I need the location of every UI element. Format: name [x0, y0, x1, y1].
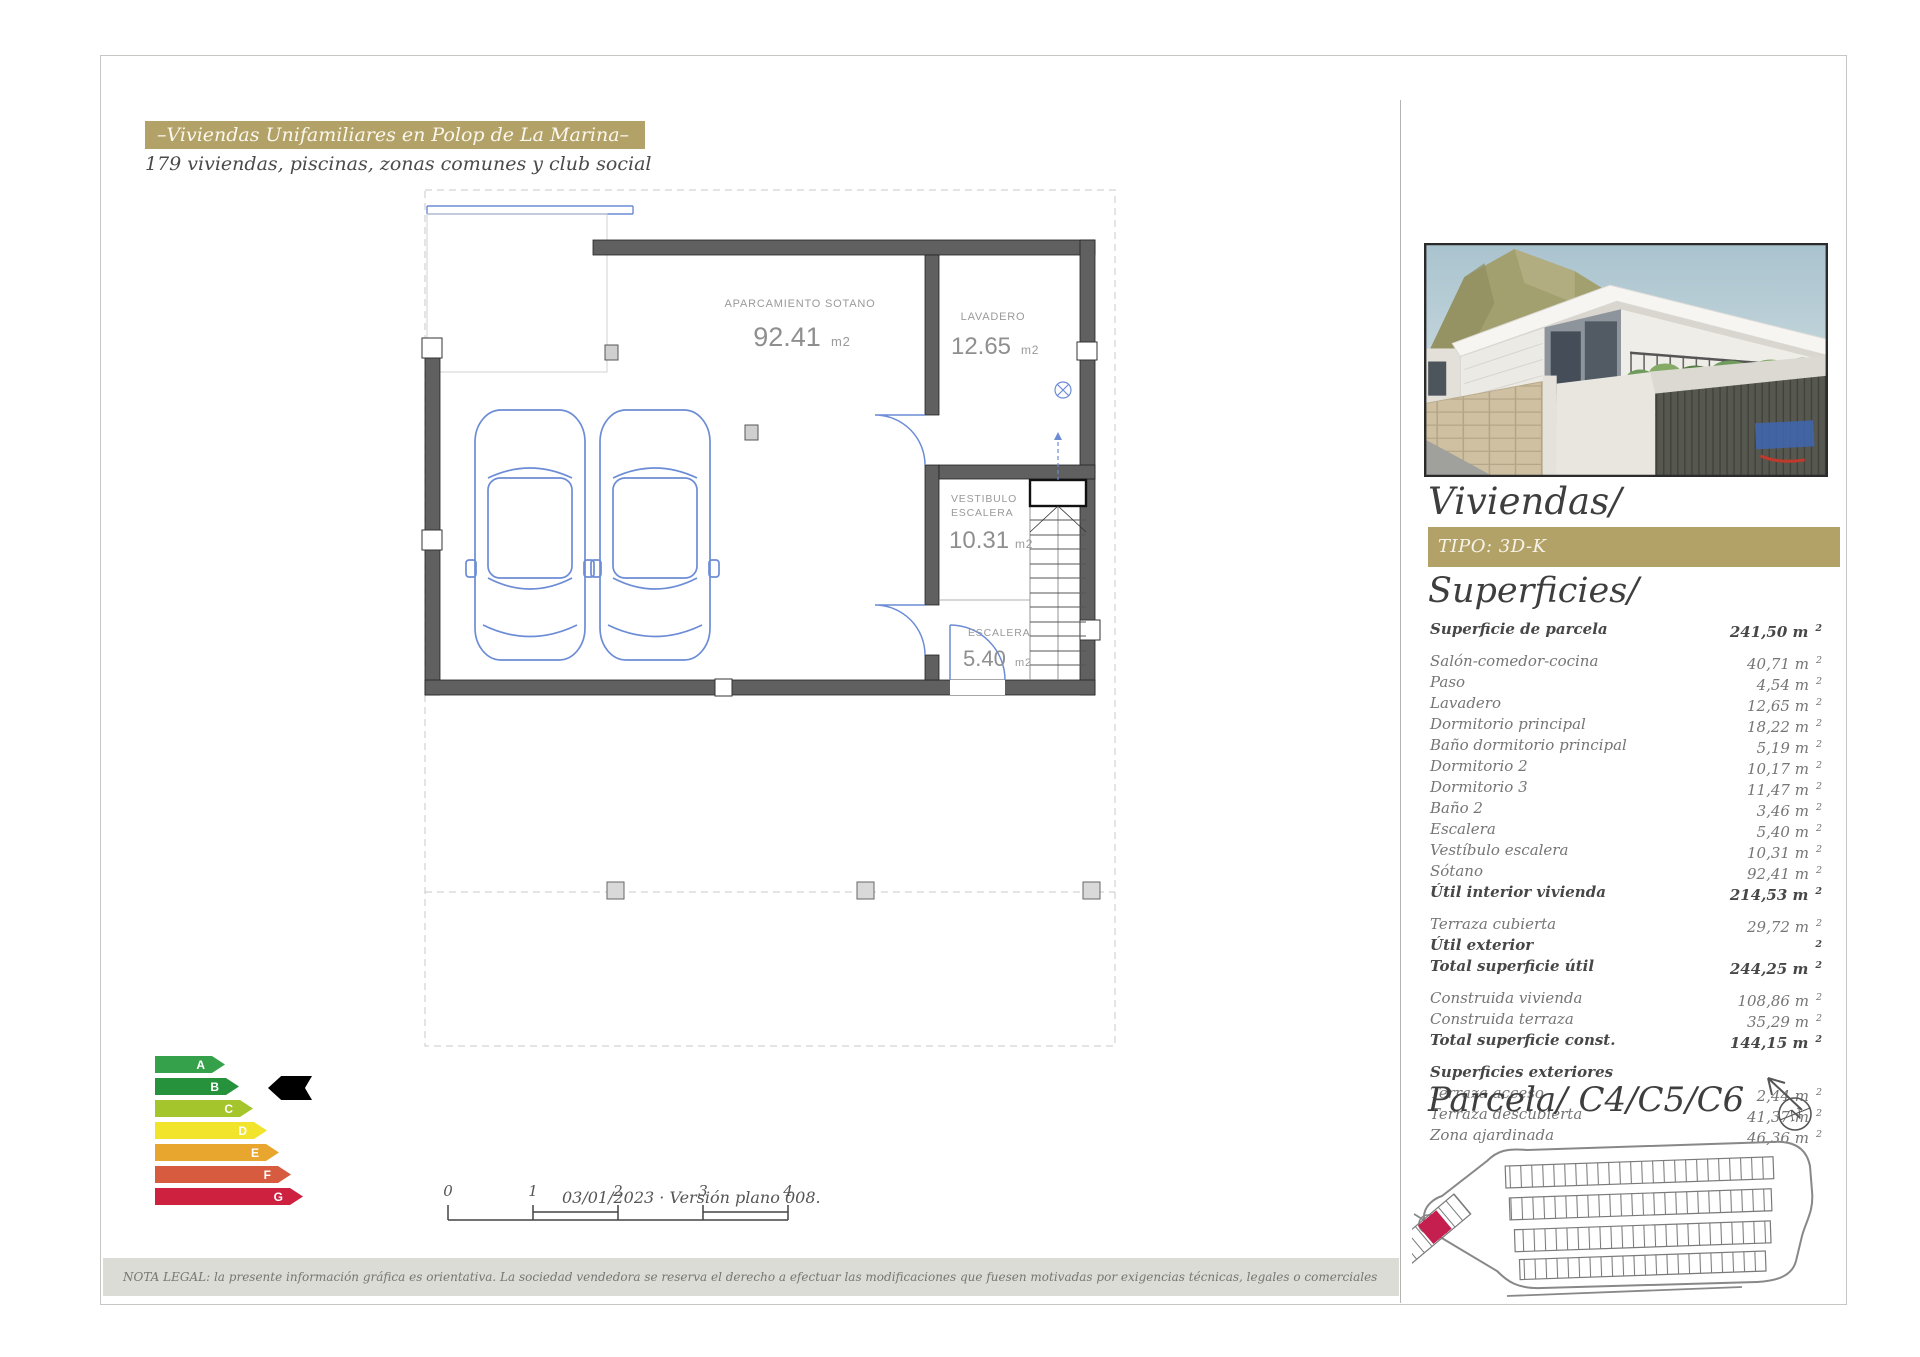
- superficies-row-label: Baño 2: [1430, 799, 1757, 820]
- superficies-row-value: 244,25 m2: [1730, 957, 1822, 978]
- superficies-row-label: Construida terraza: [1430, 1010, 1747, 1031]
- hall-room-area: 10.31: [949, 527, 1009, 554]
- scale-bar-line: [448, 1205, 788, 1220]
- superficies-row-value: 5,19 m2: [1757, 736, 1822, 757]
- energy-grade-A: A: [155, 1056, 225, 1073]
- superficies-row-label: Total superficie const.: [1430, 1031, 1730, 1052]
- superficies-row-label: Dormitorio 3: [1430, 778, 1747, 799]
- garage-room-unit: m2: [831, 334, 851, 349]
- superficies-row: Construida terraza35,29 m2: [1430, 1010, 1822, 1031]
- superficies-row: Útil interior vivienda214,53 m2: [1430, 883, 1822, 904]
- hall-room-unit: m2: [1015, 537, 1033, 551]
- superficies-row: Útil exterior2: [1430, 936, 1822, 957]
- superficies-row: Dormitorio 311,47 m2: [1430, 778, 1822, 799]
- superficies-row-label: Total superficie útil: [1430, 957, 1730, 978]
- superficies-row-value: 241,50 m2: [1730, 620, 1822, 641]
- superficies-title: Superficies/: [1428, 571, 1639, 611]
- superficies-row-value: 92,41 m2: [1747, 862, 1822, 883]
- carport-edge-lines: [427, 206, 633, 214]
- energy-grade-letter: D: [238, 1124, 247, 1138]
- superficies-row: Salón-comedor-cocina40,71 m2: [1430, 652, 1822, 673]
- compass-letter: N: [1786, 1104, 1806, 1126]
- project-banner: –Viviendas Unifamiliares en Polop de La …: [145, 121, 645, 149]
- energy-grade-D: D: [155, 1122, 267, 1139]
- superficies-row: Baño 23,46 m2: [1430, 799, 1822, 820]
- superficies-row: Terraza cubierta29,72 m2: [1430, 915, 1822, 936]
- superficies-row-label: Sótano: [1430, 862, 1747, 883]
- hall-room-name-1: VESTIBULO: [951, 493, 1017, 505]
- photo-pillar: [1543, 376, 1557, 477]
- superficies-row-value: 10,17 m2: [1747, 757, 1822, 778]
- superficies-row-label: Dormitorio 2: [1430, 757, 1747, 778]
- superficies-row-value: 40,71 m2: [1747, 652, 1822, 673]
- stairs-room-unit: m2: [1015, 657, 1032, 669]
- laundry-room-name: LAVADERO: [961, 311, 1026, 323]
- energy-grade-letter: G: [274, 1190, 283, 1204]
- photo-neighbor-window: [1428, 362, 1446, 396]
- superficies-row-value: 12,65 m2: [1747, 694, 1822, 715]
- superficies-row-label: Útil exterior: [1430, 936, 1808, 957]
- north-compass-icon: N: [1752, 1068, 1824, 1140]
- car-2: [591, 410, 719, 660]
- superficies-row-label: Superficie de parcela: [1430, 620, 1730, 641]
- project-subtitle: 179 viviendas, piscinas, zonas comunes y…: [145, 153, 651, 175]
- energy-grade-C: C: [155, 1100, 253, 1117]
- superficies-row: Dormitorio 210,17 m2: [1430, 757, 1822, 778]
- stairs-room-name: ESCALERA: [968, 627, 1030, 639]
- superficies-row: Dormitorio principal18,22 m2: [1430, 715, 1822, 736]
- superficies-row-value: 144,15 m2: [1730, 1031, 1822, 1052]
- superficies-row-value: 35,29 m2: [1747, 1010, 1822, 1031]
- energy-bars: ABCDEFG: [155, 1056, 375, 1205]
- energy-label: ABCDEFG: [155, 1056, 375, 1226]
- car-1: [466, 410, 594, 660]
- energy-grade-letter: A: [196, 1058, 205, 1072]
- driveway-outline: [427, 214, 607, 372]
- stairs-room-area: 5.40: [963, 646, 1006, 671]
- energy-grade-E: E: [155, 1144, 279, 1161]
- hall-room-name-2: ESCALERA: [951, 507, 1013, 519]
- superficies-row-value: 5,40 m2: [1757, 820, 1822, 841]
- superficies-row-value: 214,53 m2: [1730, 883, 1822, 904]
- energy-grade-G: G: [155, 1188, 303, 1205]
- laundry-room-area: 12.65: [951, 333, 1011, 360]
- energy-grade-letter: E: [251, 1146, 259, 1160]
- panel-divider: [1400, 100, 1401, 1303]
- project-banner-title: –Viviendas Unifamiliares en Polop de La …: [157, 124, 629, 146]
- superficies-row: Vestíbulo escalera10,31 m2: [1430, 841, 1822, 862]
- superficies-row-label: Escalera: [1430, 820, 1757, 841]
- floor-plan: APARCAMIENTO SOTANO 92.41 m2 LAVADERO 12…: [415, 180, 1125, 1070]
- superficies-row-label: Paso: [1430, 673, 1757, 694]
- site-parcel-bands: [1505, 1157, 1777, 1280]
- superficies-row-label: Terraza cubierta: [1430, 915, 1747, 936]
- energy-grade-F: F: [155, 1166, 291, 1183]
- energy-grade-B: B: [155, 1078, 239, 1095]
- garage-columns: [605, 345, 758, 440]
- superficies-row: Total superficie útil244,25 m2: [1430, 957, 1822, 978]
- superficies-row-label: Construida vivienda: [1430, 989, 1737, 1010]
- superficies-row-label: Baño dormitorio principal: [1430, 736, 1757, 757]
- sidebar-title: Viviendas/: [1428, 480, 1622, 523]
- scale-tick-1: 1: [528, 1182, 538, 1200]
- legal-note: NOTA LEGAL: la presente información gráf…: [103, 1258, 1399, 1296]
- tipo-banner: TIPO: 3D-K: [1428, 527, 1840, 567]
- superficies-row-value: 10,31 m2: [1747, 841, 1822, 862]
- superficies-row-value: 29,72 m2: [1747, 915, 1822, 936]
- superficies-row-label: Vestíbulo escalera: [1430, 841, 1747, 862]
- drain-symbol: [1055, 382, 1071, 398]
- superficies-row-value: 108,86 m2: [1737, 989, 1822, 1010]
- superficies-row: Construida vivienda108,86 m2: [1430, 989, 1822, 1010]
- superficies-row-label: Salón-comedor-cocina: [1430, 652, 1747, 673]
- superficies-row: Superficie de parcela241,50 m2: [1430, 620, 1822, 641]
- terrace-columns: [607, 882, 1100, 899]
- garage-room-name: APARCAMIENTO SOTANO: [725, 298, 876, 310]
- house-photo: [1424, 243, 1828, 477]
- energy-grade-letter: B: [210, 1080, 219, 1094]
- superficies-row-value: 4,54 m2: [1757, 673, 1822, 694]
- site-diagonal-band: [1412, 1194, 1471, 1264]
- scale-tick-0: 0: [443, 1182, 453, 1200]
- energy-grade-letter: C: [224, 1102, 233, 1116]
- superficies-row: Total superficie const.144,15 m2: [1430, 1031, 1822, 1052]
- plan-sheet-page: –Viviendas Unifamiliares en Polop de La …: [0, 0, 1920, 1357]
- superficies-row-value: 18,22 m2: [1747, 715, 1822, 736]
- energy-grade-letter: F: [264, 1168, 271, 1182]
- version-note: 03/01/2023 · Versión plano 008.: [562, 1188, 821, 1207]
- superficies-row-label: Lavadero: [1430, 694, 1747, 715]
- superficies-row: Escalera5,40 m2: [1430, 820, 1822, 841]
- parcela-title: Parcela/ C4/C5/C6: [1428, 1080, 1744, 1120]
- superficies-row-label: Dormitorio principal: [1430, 715, 1747, 736]
- stair-door-opening: [950, 680, 1005, 695]
- photo-center-wall: [1557, 372, 1655, 477]
- superficies-row-value: 11,47 m2: [1747, 778, 1822, 799]
- superficies-row: Sótano92,41 m2: [1430, 862, 1822, 883]
- superficies-row-label: Útil interior vivienda: [1430, 883, 1730, 904]
- superficies-row: Paso4,54 m2: [1430, 673, 1822, 694]
- superficies-row: Baño dormitorio principal5,19 m2: [1430, 736, 1822, 757]
- laundry-room-unit: m2: [1021, 343, 1039, 357]
- superficies-row-value: 3,46 m2: [1757, 799, 1822, 820]
- garage-room-area: 92.41: [753, 322, 821, 352]
- photo-garage-sign: [1755, 420, 1815, 449]
- site-plan-map: [1412, 1136, 1836, 1306]
- superficies-row-value: 2: [1808, 936, 1822, 957]
- superficies-row: Lavadero12,65 m2: [1430, 694, 1822, 715]
